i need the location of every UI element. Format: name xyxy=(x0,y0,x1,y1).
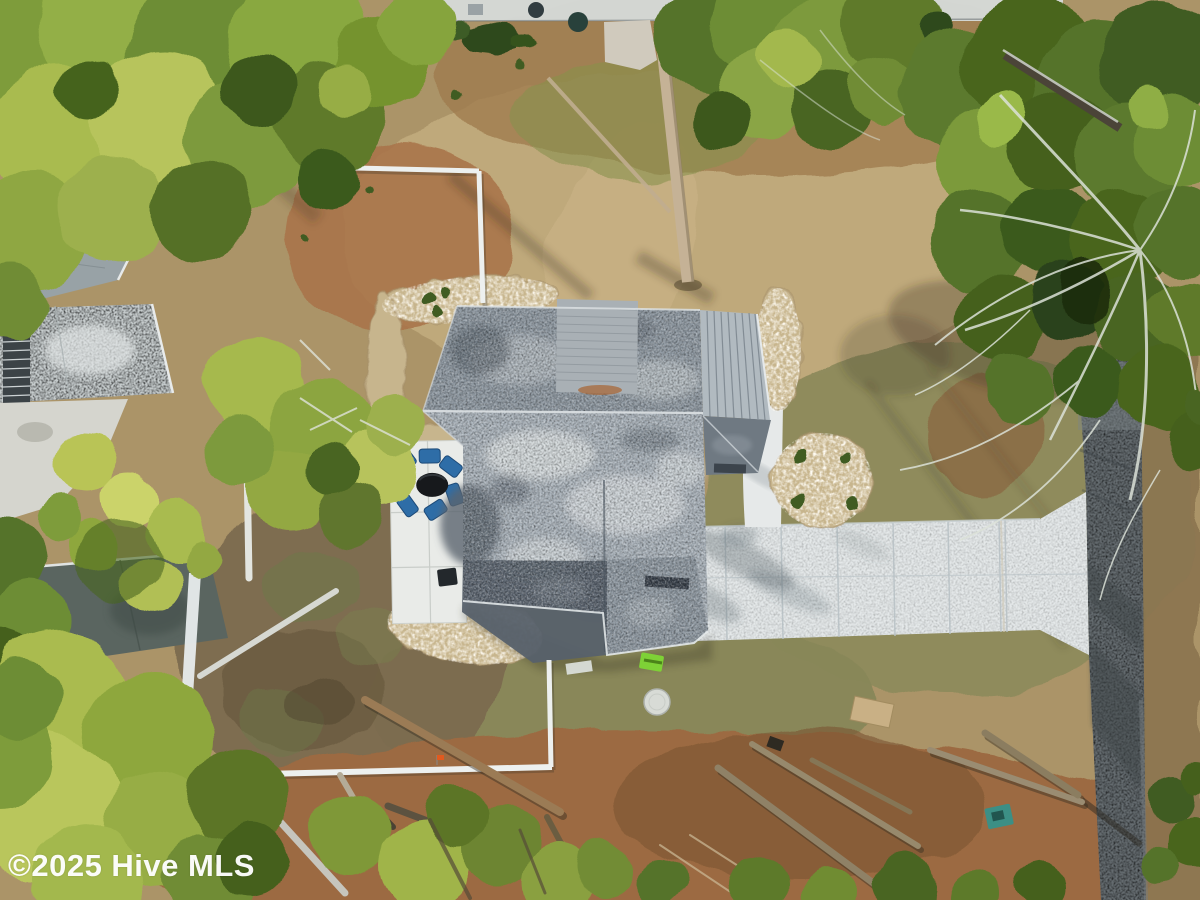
scene-canvas xyxy=(0,0,1200,900)
chimney xyxy=(556,299,638,395)
septic-lid xyxy=(644,689,670,715)
mls-watermark: ©2025 Hive MLS xyxy=(8,848,255,884)
rooftop-unit xyxy=(528,2,544,18)
concrete-pad xyxy=(604,20,657,70)
adirondack-chair xyxy=(419,449,440,463)
trash-bin xyxy=(437,568,458,587)
hot-tub xyxy=(568,12,588,32)
aerial-photo: ©2025 Hive MLS xyxy=(0,0,1200,900)
rooftop-unit xyxy=(468,4,483,15)
rust-streak xyxy=(578,385,622,395)
fence-south-return xyxy=(549,660,551,767)
ridge-vent xyxy=(714,463,746,473)
